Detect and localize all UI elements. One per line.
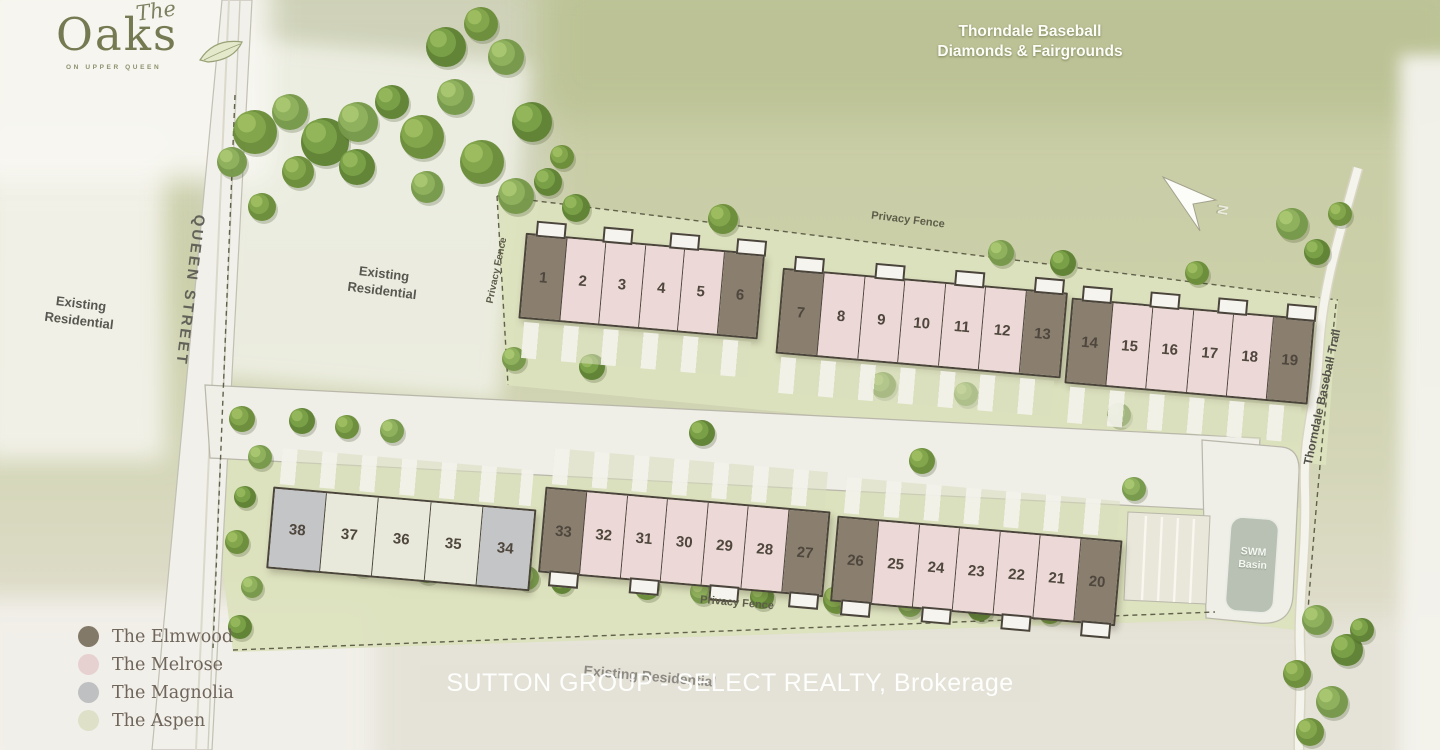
unit-34: 34 [476, 507, 534, 589]
unit-26: 26 [832, 518, 879, 603]
porch-tab [736, 238, 767, 257]
leaf-icon [196, 34, 254, 68]
legend-label: The Elmwood [112, 627, 233, 647]
unit-29: 29 [701, 503, 748, 588]
unit-19: 19 [1267, 317, 1313, 402]
logo: The Oaks ON UPPER QUEEN [50, 2, 230, 82]
legend-label: The Magnolia [112, 683, 234, 703]
unit-number: 33 [554, 522, 572, 540]
unit-number: 38 [288, 521, 306, 539]
unit-number: 2 [578, 272, 588, 290]
unit-number: 28 [756, 540, 774, 558]
unit-number: 14 [1081, 333, 1099, 351]
unit-13: 13 [1019, 291, 1065, 376]
legend-color-dot [78, 710, 99, 731]
unit-number: 7 [796, 304, 806, 322]
porch-tab [548, 570, 579, 589]
unit-number: 11 [953, 317, 970, 335]
block-units-14-19: 141516171819 [1061, 298, 1315, 444]
unit-11: 11 [939, 284, 986, 369]
unit-number: 20 [1088, 572, 1106, 590]
unit-30: 30 [661, 499, 708, 584]
unit-33: 33 [540, 489, 587, 574]
legend-color-dot [78, 626, 99, 647]
unit-27: 27 [782, 510, 828, 595]
unit-35: 35 [424, 502, 483, 584]
unit-number: 19 [1281, 351, 1299, 369]
unit-number: 21 [1048, 569, 1066, 587]
unit-number: 35 [444, 534, 462, 552]
unit-25: 25 [873, 521, 920, 606]
logo-tagline: ON UPPER QUEEN [66, 64, 161, 71]
porch-tab [874, 263, 905, 282]
unit-number: 18 [1241, 347, 1259, 365]
unit-number: 34 [496, 539, 514, 557]
unit-number: 36 [392, 530, 410, 548]
unit-number: 29 [715, 536, 733, 554]
unit-number: 23 [967, 562, 985, 580]
unit-number: 1 [538, 269, 548, 287]
porch-tab [1286, 303, 1317, 322]
unit-number: 22 [1007, 565, 1025, 583]
porch-tab [1217, 297, 1248, 316]
watermark: SUTTON GROUP - SELECT REALTY, Brokerage [420, 665, 1040, 702]
unit-number: 37 [340, 525, 358, 543]
porch-tab [669, 232, 700, 251]
porch-tab [1080, 620, 1111, 639]
unit-36: 36 [372, 498, 431, 580]
unit-number: 26 [846, 551, 864, 569]
porch-tab [535, 221, 566, 240]
logo-name: Oaks [56, 12, 178, 57]
unit-37: 37 [320, 493, 379, 575]
legend-item-the-aspen: The Aspen [78, 710, 234, 731]
unit-10: 10 [898, 281, 945, 366]
unit-number: 15 [1121, 337, 1139, 355]
unit-31: 31 [621, 496, 668, 581]
legend-item-the-melrose: The Melrose [78, 654, 234, 675]
legend-color-dot [78, 682, 99, 703]
unit-number: 12 [993, 321, 1011, 339]
porch-tab [1000, 613, 1031, 632]
unit-number: 10 [913, 314, 931, 332]
legend-label: The Melrose [112, 655, 223, 675]
unit-number: 30 [675, 533, 693, 551]
porch-tab [1149, 291, 1180, 310]
unit-number: 8 [836, 307, 846, 325]
unit-number: 32 [595, 526, 613, 544]
block-units-38-34: 3837363534 [266, 448, 540, 592]
unit-number: 9 [877, 311, 887, 329]
porch-tab [1033, 277, 1064, 296]
unit-12: 12 [979, 288, 1026, 373]
block-units-7-13: 78910111213 [772, 268, 1068, 417]
unit-number: 31 [635, 529, 653, 547]
unit-number: 13 [1033, 324, 1051, 342]
unit-row: 123456 [518, 233, 765, 340]
unit-20: 20 [1074, 539, 1120, 624]
unit-32: 32 [581, 492, 628, 577]
block-units-26-20: 26252423222120 [830, 477, 1126, 626]
unit-number: 3 [617, 276, 627, 294]
legend-color-dot [78, 654, 99, 675]
unit-number: 5 [696, 282, 706, 300]
porch-tab [1081, 286, 1112, 305]
legend-label: The Aspen [112, 711, 205, 731]
unit-38: 38 [268, 489, 327, 571]
unit-8: 8 [818, 273, 865, 358]
porch-tab [788, 591, 819, 610]
unit-6: 6 [717, 252, 763, 337]
legend: The ElmwoodThe MelroseThe MagnoliaThe As… [78, 626, 234, 738]
unit-number: 25 [887, 555, 905, 573]
unit-number: 17 [1201, 344, 1219, 362]
porch-tab [840, 599, 871, 618]
unit-row: 141516171819 [1064, 298, 1315, 405]
porch-tab [794, 256, 825, 275]
block-units-33-27: 33323130292827 [538, 448, 834, 597]
unit-number: 4 [656, 279, 666, 297]
site-plan: 1234567891011121314151617181938373635343… [0, 0, 1440, 750]
unit-number: 27 [796, 543, 814, 561]
block-units-1-6: 123456 [515, 233, 765, 378]
unit-7: 7 [778, 270, 825, 355]
porch-tab [954, 270, 985, 289]
unit-number: 16 [1161, 340, 1179, 358]
porch-tab [920, 606, 951, 625]
porch-tab [628, 577, 659, 596]
legend-item-the-elmwood: The Elmwood [78, 626, 234, 647]
porch-tab [708, 584, 739, 603]
legend-item-the-magnolia: The Magnolia [78, 682, 234, 703]
unit-number: 6 [735, 286, 745, 304]
unit-24: 24 [913, 525, 960, 610]
unit-22: 22 [993, 532, 1040, 617]
porch-tab [602, 227, 633, 246]
unit-number: 24 [927, 558, 945, 576]
unit-23: 23 [953, 528, 1000, 613]
